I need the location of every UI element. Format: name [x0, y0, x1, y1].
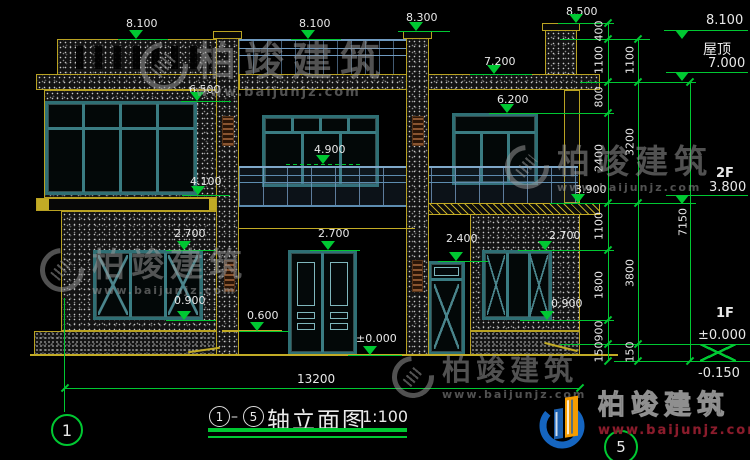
- window-1f-right: [482, 250, 552, 320]
- door-panel: [330, 312, 348, 319]
- level-line: [239, 331, 289, 332]
- floor-band-left: [36, 198, 222, 211]
- level-line: [286, 164, 360, 165]
- level-line: [550, 203, 610, 204]
- door-transom-rail: [431, 278, 462, 281]
- title-dash: –: [231, 409, 238, 425]
- level-triangle-mark: [409, 22, 423, 31]
- door-open-mark: [434, 284, 459, 349]
- level-triangle-mark: [316, 155, 330, 164]
- door-panel: [297, 323, 315, 330]
- outer-level-triangle: [675, 30, 689, 39]
- axis-bubble-1: 1: [51, 414, 83, 446]
- level-triangle-mark: [363, 346, 377, 355]
- level-triangle-mark: [538, 241, 552, 250]
- dim-chain-value: 1100: [593, 212, 606, 240]
- watermark-url: www.baijunjz.com: [557, 181, 713, 194]
- watermark-name: 柏竣建筑: [196, 42, 388, 82]
- level-value: ±0.000: [356, 332, 397, 345]
- level-triangle-mark: [569, 14, 583, 23]
- level-line: [181, 101, 231, 102]
- level-line: [518, 250, 582, 251]
- floor1-label: 1F: [716, 306, 734, 321]
- elevation-drawing-canvas: 13200 1 5 8.100 屋顶 7.000 2F 3.800 1F ±0.…: [0, 0, 750, 460]
- level-line: [310, 250, 360, 251]
- porch-roof-slab: [424, 203, 600, 215]
- level-triangle-mark: [449, 252, 463, 261]
- title-underline-thin: [208, 436, 407, 438]
- door-center-stile: [321, 253, 324, 352]
- window-mullion: [319, 118, 322, 131]
- level-line: [118, 39, 168, 40]
- dim-chain-value: 400: [593, 21, 606, 42]
- zero-level-hourglass-mark: [700, 344, 736, 361]
- dim-chain-value: 1100: [624, 46, 637, 74]
- door-panel: [330, 262, 348, 306]
- level-triangle-mark: [301, 30, 315, 39]
- casement-open-mark: [530, 255, 548, 315]
- window-transom-rail: [455, 131, 535, 134]
- level-triangle-mark: [177, 311, 191, 320]
- watermark-logo-icon: [31, 239, 93, 301]
- watermark-name: 柏竣建筑: [557, 145, 713, 178]
- level-line: [398, 31, 450, 32]
- watermark-logo-icon: [496, 136, 558, 198]
- level-triangle-mark: [250, 322, 264, 331]
- dim-chain-value: 150: [593, 342, 606, 363]
- level-value: 8.100: [299, 17, 331, 30]
- window-2f-left: [45, 101, 197, 195]
- casement-open-mark: [487, 255, 505, 315]
- side-entry-door: [428, 261, 465, 355]
- window-transom-rail: [48, 127, 194, 130]
- outer-top-level: 8.100: [706, 13, 743, 28]
- outer-level-triangle: [675, 195, 689, 204]
- watermark: 柏竣建筑 www.baijunjz.com: [40, 248, 248, 297]
- door-transom-panel: [434, 267, 459, 276]
- level-line: [470, 74, 532, 75]
- floor2-label: 2F: [716, 166, 734, 181]
- title-axis-start-bubble: 1: [209, 406, 230, 427]
- level-value: 2.700: [549, 229, 581, 242]
- watermark-name: 柏竣建筑: [442, 356, 586, 385]
- level-value: 8.100: [126, 17, 158, 30]
- level-value: 2.700: [174, 227, 206, 240]
- level-triangle-mark: [129, 30, 143, 39]
- roof-slab-right: [428, 74, 600, 90]
- dim-chain-value: 900: [593, 321, 606, 342]
- level-triangle-mark: [540, 311, 554, 320]
- level-line: [489, 113, 541, 114]
- tower-b-column: [406, 38, 429, 355]
- window-mullion: [119, 104, 122, 192]
- level-value: 0.900: [551, 297, 583, 310]
- entry-double-door: [288, 250, 357, 355]
- level-triangle-mark: [500, 104, 514, 113]
- door-panel: [297, 312, 315, 319]
- axis-line-left: [64, 298, 65, 412]
- floor1-level: ±0.000: [698, 328, 746, 343]
- dim-chain-value: 800: [593, 87, 606, 108]
- level-triangle-mark: [191, 186, 205, 195]
- watermark-url: www.baijunjz.com: [196, 85, 388, 100]
- level-value: 2.700: [318, 227, 350, 240]
- level-triangle-mark: [571, 194, 585, 203]
- window-transom-rail: [265, 131, 376, 134]
- watermark-url: www.baijunjz.com: [92, 284, 248, 297]
- title-axis-end-bubble: 5: [243, 406, 264, 427]
- dim-chain-value: 1100: [593, 46, 606, 74]
- watermark: 柏竣建筑 www.baijunjz.com: [505, 145, 713, 194]
- floor2-level: 3.800: [709, 180, 746, 195]
- brand-url: www.baijunjz.com: [598, 423, 750, 438]
- axis-number: 1: [62, 421, 72, 440]
- window-mullion: [506, 253, 509, 317]
- overall-width-value: 13200: [297, 372, 335, 386]
- level-line: [166, 320, 216, 321]
- level-line: [520, 320, 582, 321]
- level-triangle-mark: [321, 241, 335, 250]
- tower-c-body: [545, 30, 577, 75]
- level-triangle-mark: [487, 65, 501, 74]
- watermark-logo-icon: [130, 32, 198, 100]
- door-panel: [330, 323, 348, 330]
- window-mullion: [156, 104, 159, 192]
- level-value: 2.400: [446, 232, 478, 245]
- door-panel: [297, 262, 315, 306]
- title-underline-thick: [208, 428, 407, 432]
- plinth-right: [470, 331, 580, 355]
- window-mullion: [347, 118, 350, 131]
- wall-ornament: [222, 116, 234, 146]
- ground-offset-level: -0.150: [698, 366, 740, 381]
- watermark-logo-icon: [383, 347, 442, 406]
- wall-ornament: [412, 116, 424, 146]
- level-line: [438, 261, 488, 262]
- roof-level: 7.000: [708, 56, 745, 71]
- dim-chain-value: 1800: [593, 271, 606, 299]
- band-endcap: [37, 199, 49, 210]
- title-axis-end: 5: [250, 410, 258, 424]
- dim-chain-value: 3800: [624, 259, 637, 287]
- drawing-scale: 1:100: [362, 407, 408, 426]
- brand-logo: 柏竣建筑 www.baijunjz.com: [538, 390, 750, 452]
- brand-logo-icon: [538, 390, 590, 452]
- dim-chain-line: [690, 82, 691, 361]
- dim-chain-value: 7150: [677, 208, 690, 236]
- level-line: [182, 195, 230, 196]
- watermark: 柏竣建筑 www.baijunjz.com: [140, 42, 388, 100]
- title-axis-start: 1: [216, 410, 224, 424]
- window-mullion: [291, 118, 294, 131]
- level-extension-line: [540, 113, 614, 114]
- watermark-name: 柏竣建筑: [92, 248, 248, 281]
- window-mullion: [82, 104, 85, 192]
- level-value: 0.600: [247, 309, 279, 322]
- outer-level-triangle: [675, 72, 689, 81]
- wall-ornament: [412, 260, 423, 292]
- brand-name: 柏竣建筑: [598, 390, 750, 421]
